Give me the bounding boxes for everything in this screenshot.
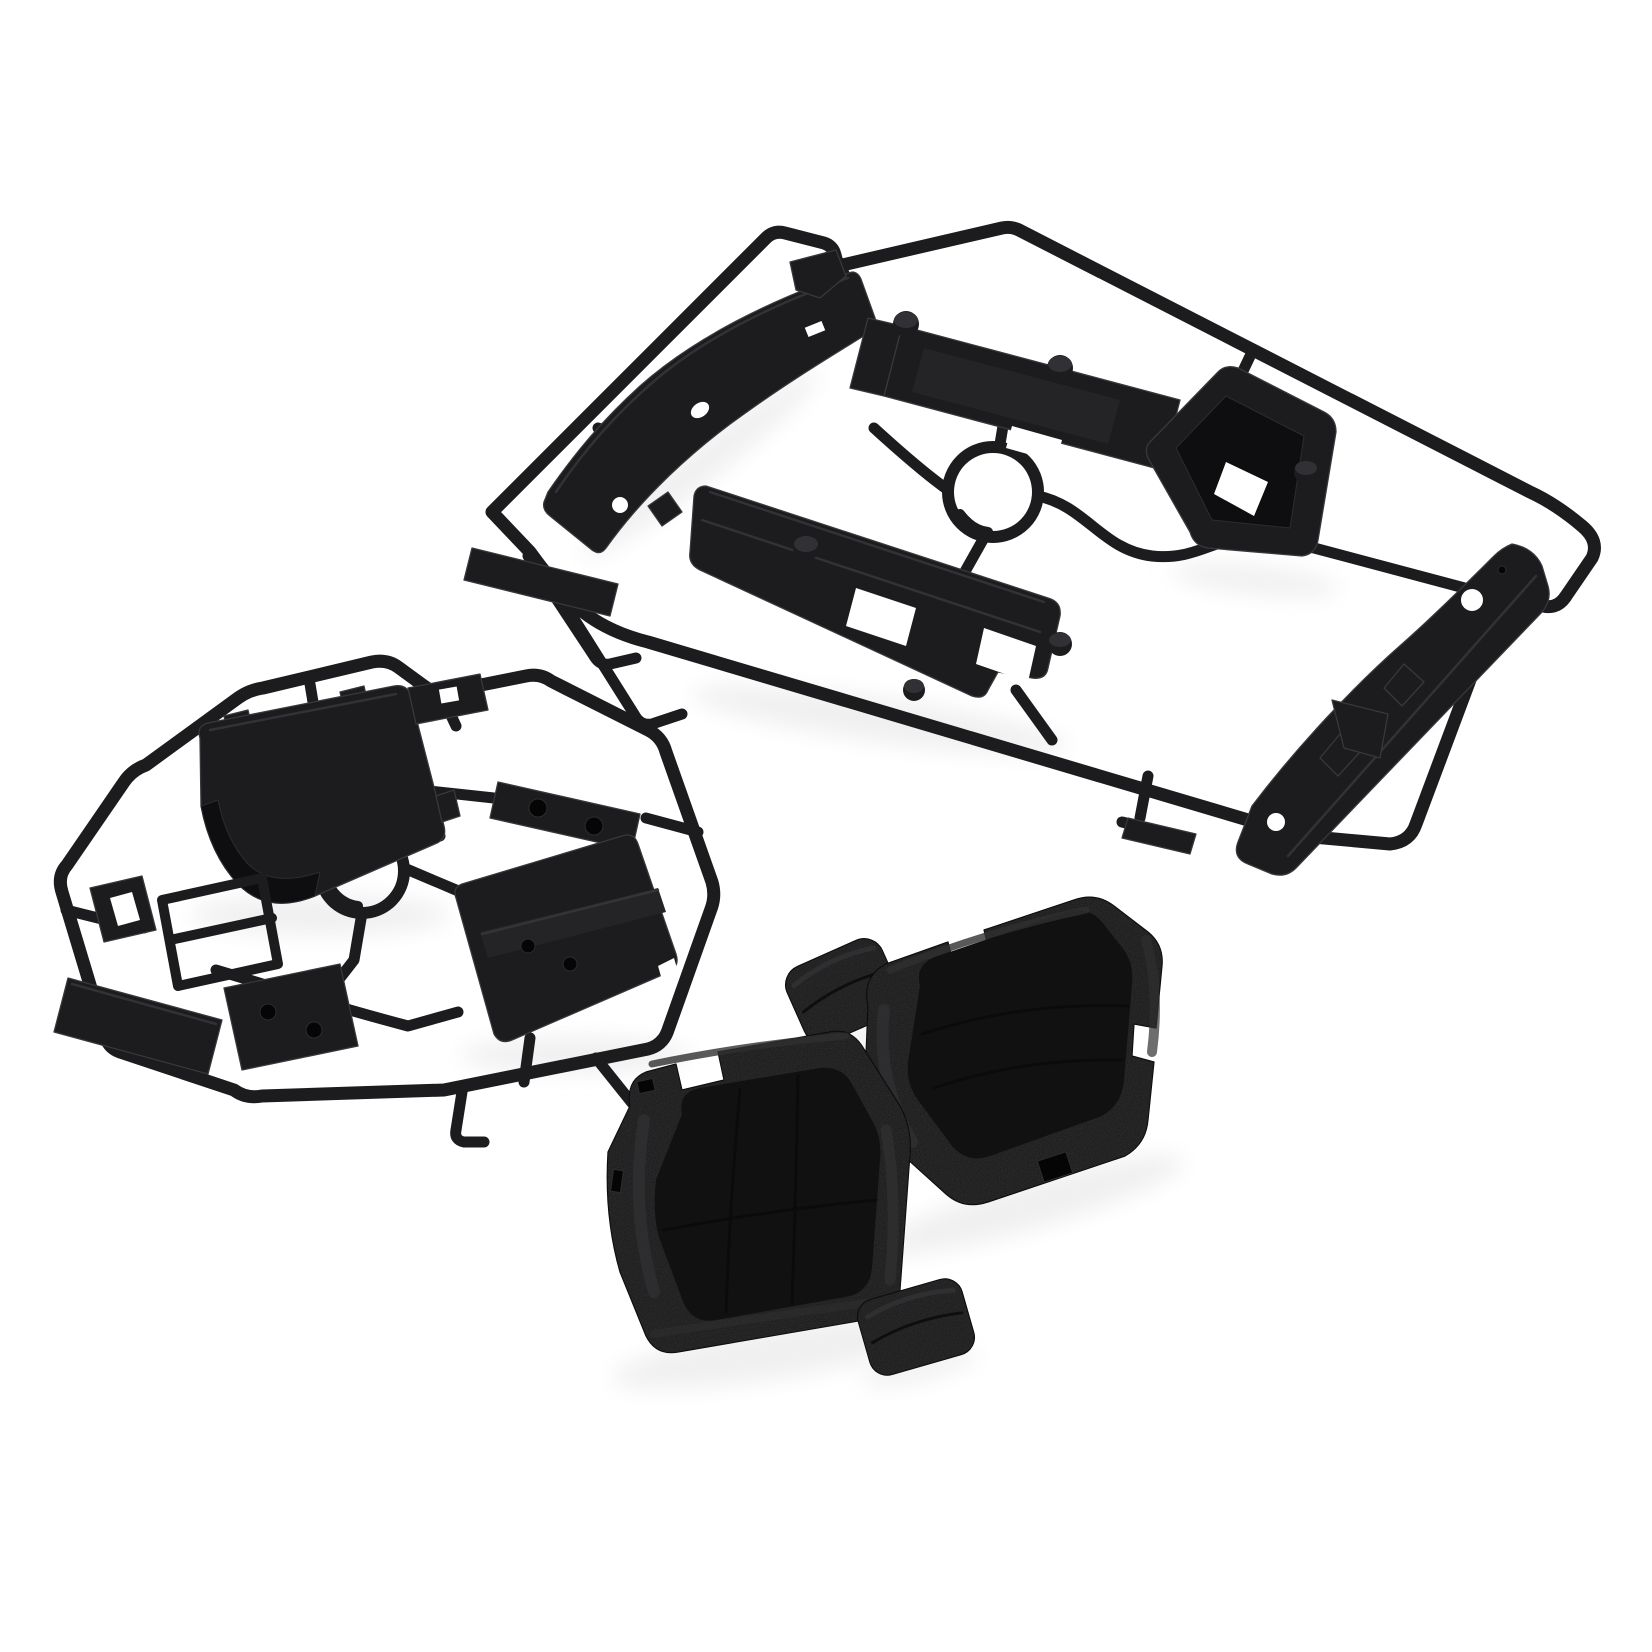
boss-bar-boss-2 [585,817,603,835]
tray-pin-1 [893,311,919,337]
boss-bar-boss-1 [529,799,547,817]
sill-strip-hole-2 [1267,813,1285,831]
sill-strip-hole-1 [1461,589,1483,611]
sill-strip-pinhole [1498,566,1506,574]
bin-pin [1294,460,1318,484]
base-plate-hole-1 [521,939,535,953]
seat-bottom-center-panel [655,1068,881,1321]
two-hole-plate-hole-1 [260,1004,276,1020]
base-plate-hole-2 [563,957,577,971]
dashboard-trim-round-hole [612,497,628,513]
product-photo: Product photo: two black injection-molde… [0,0,1652,1652]
console-box-pin-1 [793,535,819,561]
console-box-pin-3 [903,679,925,701]
seat-bottom-top-slot [637,1078,655,1093]
two-hole-plate-hole-2 [306,1022,322,1038]
console-box-pin-2 [1048,632,1072,656]
tray-pin-2 [1047,355,1073,381]
photo-canvas [0,0,1652,1652]
